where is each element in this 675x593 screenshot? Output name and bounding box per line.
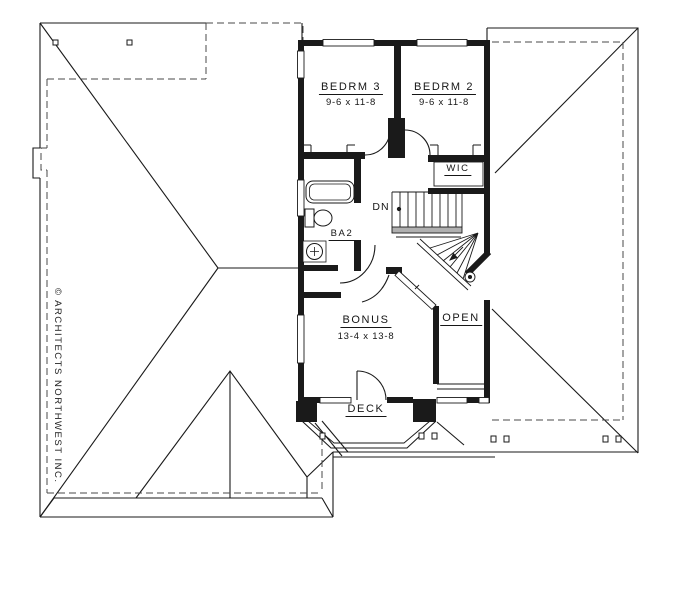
door-bed3 — [365, 130, 390, 155]
wall-bonus-east — [433, 306, 439, 384]
wall-wic-north — [428, 155, 490, 162]
room-name-open: OPEN — [440, 312, 482, 326]
window-bed3-west — [298, 51, 305, 78]
window-bonus-west — [298, 315, 305, 363]
room-dims-bedrm3: 9-6 x 11-8 — [326, 97, 376, 108]
deck-post-right — [413, 399, 436, 422]
dn-marker-dot — [397, 207, 400, 210]
room-name-ba2: BA2 — [329, 228, 356, 241]
stairs — [392, 192, 478, 290]
wall-right-lower — [484, 300, 490, 403]
room-label-bedrm2: BEDRM 2 — [412, 81, 476, 93]
stair-run-boundary — [392, 192, 462, 227]
window-ba2-west — [298, 180, 305, 216]
copyright-text: © ARCHITECTS NORTHWEST INC. — [52, 288, 63, 483]
room-name-deck: DECK — [346, 403, 387, 417]
wall-right-upper — [484, 40, 490, 255]
wall-bonus-north — [298, 292, 341, 298]
window-angled — [395, 271, 436, 309]
room-dims-bonus: 13-4 x 13-8 — [338, 331, 395, 342]
toilet-tank — [305, 209, 314, 227]
stair-treads-upper — [400, 192, 456, 227]
wall-bottom-b — [387, 397, 413, 403]
left-eave-fascia — [40, 452, 333, 517]
wall-wic-south — [428, 188, 490, 194]
stair-handrail — [392, 227, 462, 233]
stair-stringers — [417, 239, 471, 290]
stair-newel-dot — [468, 275, 471, 278]
room-label-wic: WIC — [444, 163, 471, 174]
window-open-south-a — [437, 398, 467, 404]
window-open-south-b — [479, 398, 489, 404]
wall-divider-stub — [388, 118, 405, 158]
door-bonus — [357, 371, 386, 400]
room-label-deck: DECK — [346, 403, 387, 415]
wall-bed3-south — [298, 152, 365, 159]
left-roof-edge — [33, 23, 333, 517]
stair-direction-label: DN — [372, 201, 389, 213]
wall-ba2-east-lower — [354, 240, 361, 271]
room-name-wic: WIC — [444, 163, 471, 176]
right-roof-hips — [492, 28, 638, 453]
room-label-bonus: BONUS — [340, 314, 391, 326]
deck-roof-valleys — [315, 421, 464, 456]
arch-to-bonus — [362, 275, 389, 302]
bath-fixtures — [303, 181, 354, 262]
room-name-bedrm3: BEDRM 3 — [319, 81, 383, 95]
right-roof-edge — [487, 28, 638, 453]
toilet-bowl — [314, 210, 332, 226]
wall-bedroom-divider — [394, 40, 401, 120]
floor-plan-page: BEDRM 3 9-6 x 11-8 BEDRM 2 9-6 x 11-8 WI… — [0, 0, 675, 593]
bottom-eave — [333, 452, 638, 457]
wall-ba2-south — [298, 265, 338, 271]
room-name-bonus: BONUS — [340, 314, 391, 328]
door-bed2 — [405, 130, 430, 155]
left-roof-hips — [40, 23, 302, 517]
wall-ba2-east-upper — [354, 159, 361, 203]
room-name-bedrm2: BEDRM 2 — [412, 81, 476, 95]
doors — [340, 130, 430, 400]
window-bed2-north — [417, 40, 467, 47]
open-area-sill — [437, 384, 484, 389]
bathtub-inner — [310, 184, 351, 200]
deck-post-left — [296, 401, 317, 422]
room-label-bedrm3: BEDRM 3 — [319, 81, 383, 93]
room-label-open: OPEN — [440, 312, 482, 324]
room-label-ba2: BA2 — [329, 228, 356, 239]
room-dims-bedrm2: 9-6 x 11-8 — [419, 97, 469, 108]
wall-bottom-c — [467, 397, 480, 403]
window-bed3-north — [323, 40, 374, 47]
